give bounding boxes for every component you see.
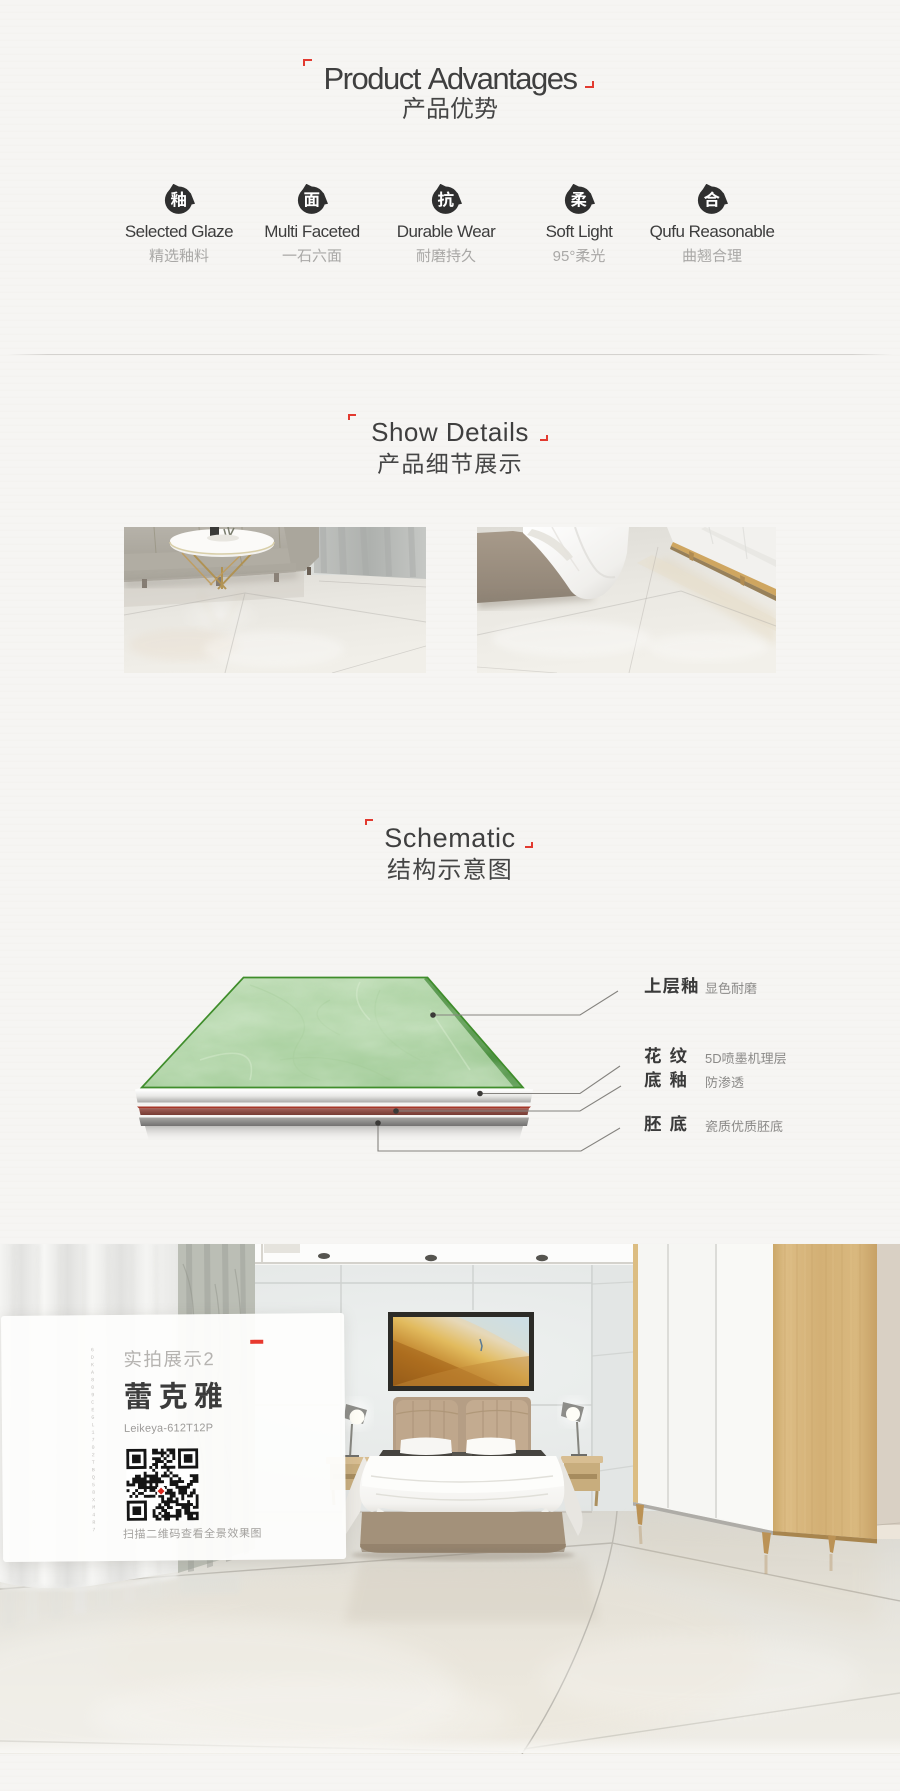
svg-text:釉: 釉 bbox=[170, 187, 187, 211]
svg-text:抗: 抗 bbox=[437, 187, 454, 211]
svg-text:柔: 柔 bbox=[570, 187, 587, 211]
svg-text:合: 合 bbox=[703, 187, 720, 211]
svg-text:面: 面 bbox=[303, 187, 320, 211]
